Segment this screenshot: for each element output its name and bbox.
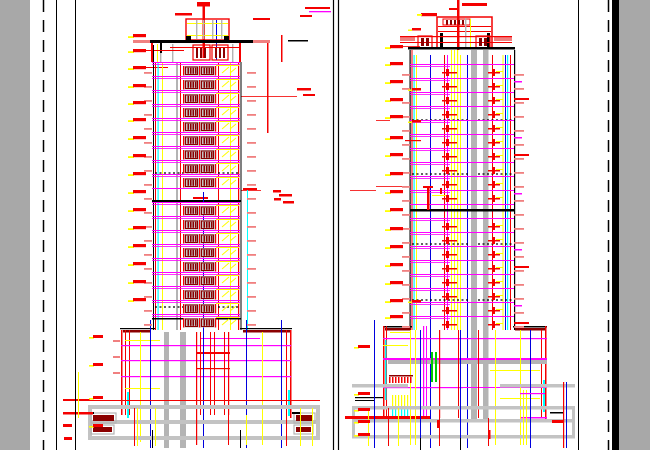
sheet-shadow-bar: [612, 0, 619, 450]
drawing-canvas[interactable]: [0, 0, 650, 450]
cad-viewer: [0, 0, 650, 450]
sheet: [0, 0, 650, 450]
canvas-margin-left: [0, 0, 30, 450]
canvas-margin-right: [619, 0, 650, 450]
